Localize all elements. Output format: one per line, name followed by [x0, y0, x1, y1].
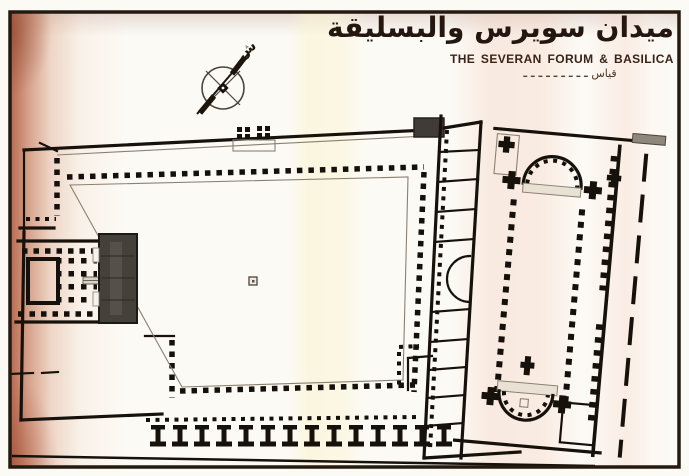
band-exedra — [447, 256, 470, 302]
east-lintel-block — [632, 134, 666, 146]
east-colonnade — [414, 172, 424, 392]
basilica-north-apse — [522, 154, 583, 197]
south-pier-row — [148, 425, 454, 447]
nave-marker — [520, 356, 536, 376]
scale-dashes: ـ ـ ـ ـ ـ ـ ـ ـ ـ — [523, 67, 587, 80]
south-portico-dots — [146, 417, 418, 420]
scale-word: قياس — [591, 67, 616, 80]
basilica-pier — [502, 170, 522, 190]
basilica-south-wall — [455, 440, 600, 453]
band-south-wall — [424, 452, 520, 458]
temple-cella — [28, 259, 58, 303]
basilica-north-wall — [495, 128, 640, 141]
basilica-pier — [498, 136, 516, 154]
basilica-south-apse — [495, 381, 558, 423]
temple-stairs — [93, 234, 137, 323]
forum-north-wall — [24, 130, 426, 150]
scale-bar: قياس ـ ـ ـ ـ ـ ـ ـ ـ ـ — [495, 67, 645, 80]
north-colonnade — [67, 167, 424, 177]
nave-west-colonnade — [497, 199, 514, 394]
forum-west-wall-lower — [21, 232, 24, 420]
west-cross-wall-2 — [42, 372, 58, 373]
street-dashed-wall — [620, 154, 647, 458]
compass-rose-icon: ش — [197, 38, 260, 114]
west-cross-wall — [10, 373, 33, 374]
scanned-plan-page: ش ميدان سويرس والبسليقة THE SEVERAN FORU… — [0, 0, 689, 476]
basilica-pier — [583, 180, 603, 200]
band-east-wall — [461, 122, 481, 458]
temple — [16, 234, 137, 323]
plan-title-arabic: ميدان سويرس والبسليقة — [436, 6, 674, 50]
band-north-wall — [444, 122, 481, 128]
nave-east-colonnade — [565, 209, 582, 408]
compass-north-glyph: ش — [234, 38, 259, 63]
basilica — [454, 120, 666, 459]
south-street-line — [12, 456, 595, 466]
plan-title-english: THE SEVERAN FORUM & BASILICA — [450, 52, 654, 66]
plaza-central-base — [249, 277, 257, 285]
forum-south-wall — [21, 414, 162, 420]
